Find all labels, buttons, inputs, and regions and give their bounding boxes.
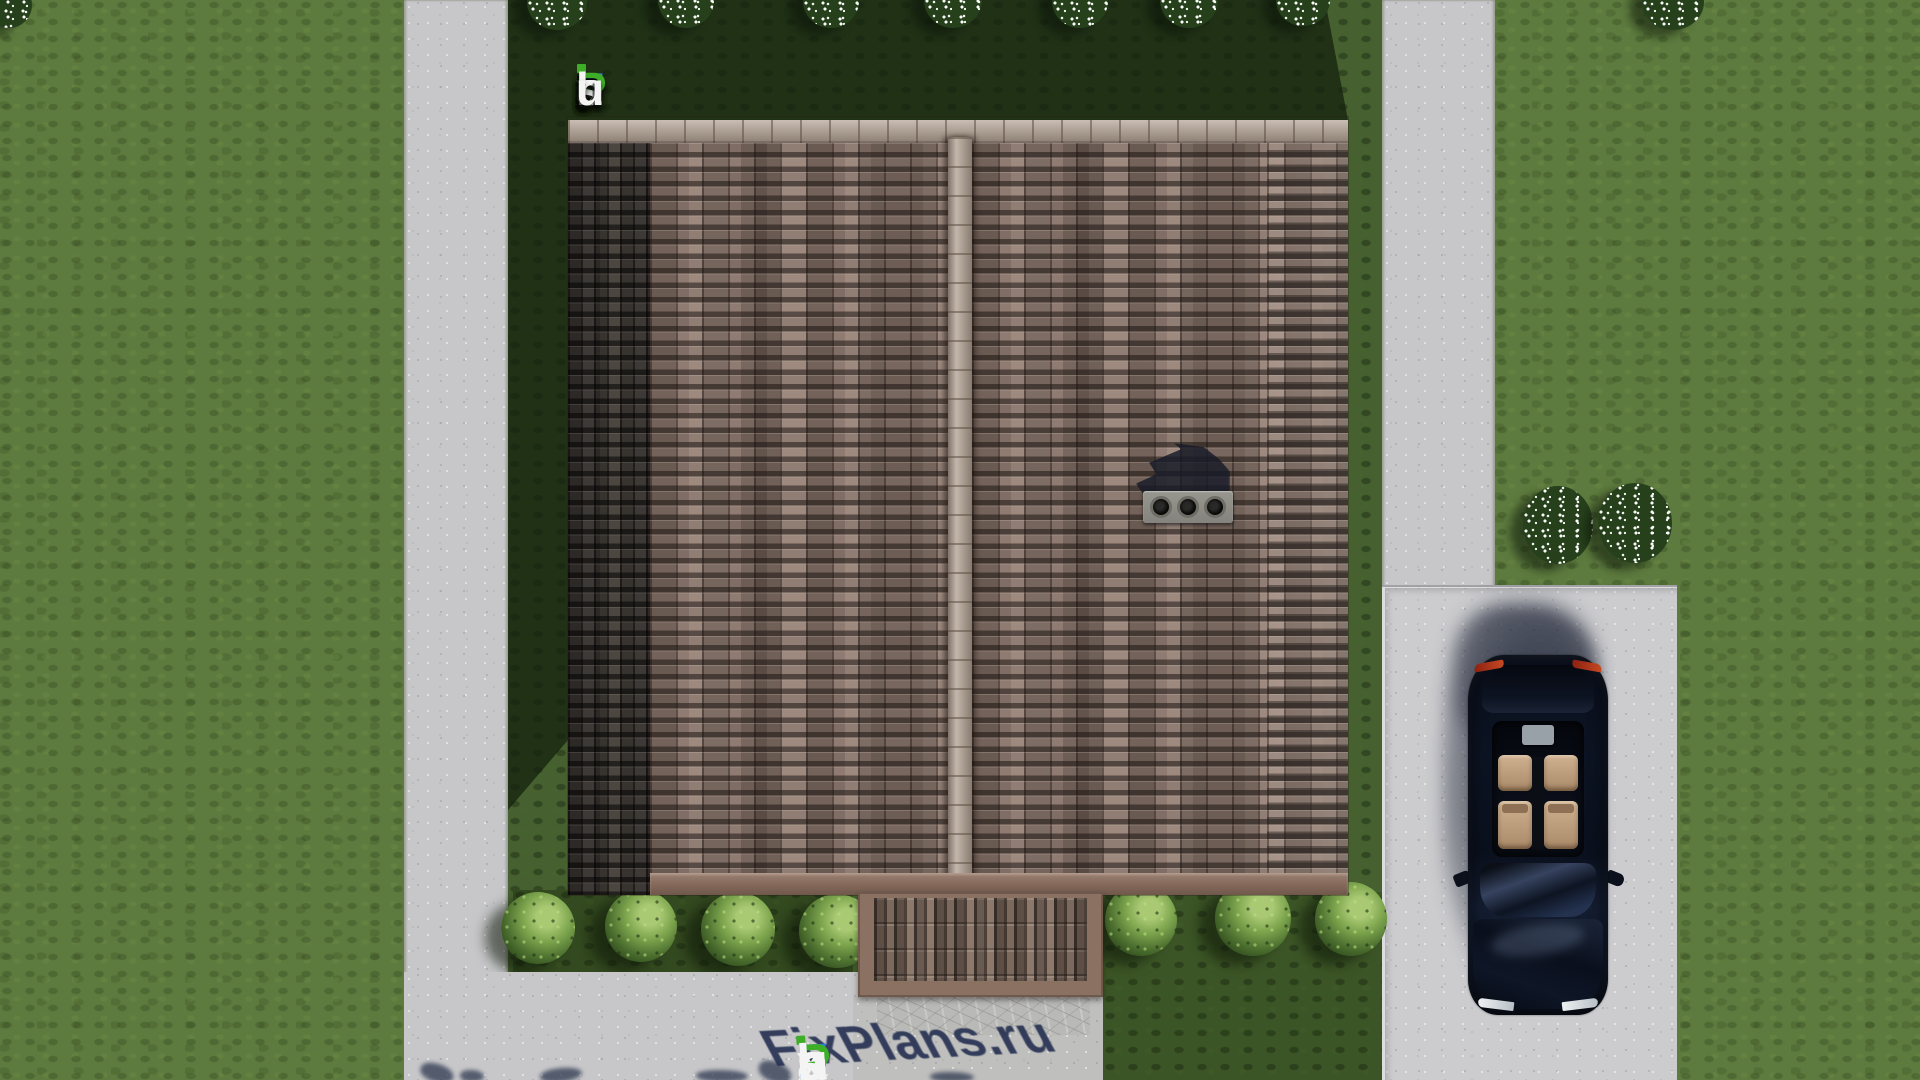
car-group — [1440, 600, 1650, 1030]
porch-roof — [858, 892, 1103, 997]
hood-reflection — [1489, 919, 1586, 961]
car-windshield — [1480, 863, 1596, 917]
tree-shadow — [696, 1070, 748, 1080]
car-glass-roof — [1492, 721, 1584, 857]
porch-roof-tiles — [874, 898, 1087, 981]
driveway-seam — [1382, 585, 1677, 587]
garden-path-left — [404, 0, 508, 1080]
bush — [501, 892, 575, 964]
car-center-tunnel — [1532, 757, 1544, 849]
aerial-render: FixPlans.ru FixPlans.ru FixPlans.ru — [0, 0, 1920, 1080]
house-roof — [568, 117, 1348, 895]
car-hood — [1473, 919, 1603, 1009]
car-rear-window — [1482, 665, 1594, 713]
planting-strip-left — [513, 890, 853, 972]
tree-shadow — [460, 1070, 484, 1080]
car-front-seat — [1498, 801, 1532, 849]
ridge-cap-center — [948, 137, 972, 895]
roof-dark-band — [568, 143, 650, 895]
car-console — [1522, 725, 1554, 745]
roof-slope-left — [650, 143, 948, 873]
car-front-seat — [1544, 801, 1578, 849]
chimney — [1143, 491, 1233, 523]
chimney-flue — [1150, 496, 1172, 518]
car-headrest — [1502, 804, 1528, 813]
car-rear-seat — [1544, 755, 1578, 791]
bush — [605, 890, 677, 962]
bush — [701, 892, 775, 966]
car — [1468, 655, 1608, 1015]
flowering-bush — [1598, 483, 1672, 563]
car-headrest — [1548, 804, 1574, 813]
chimney-flue — [1177, 496, 1199, 518]
lawn-left — [0, 0, 404, 1080]
garden-path-right — [1382, 0, 1495, 590]
bottom-watermark: FixPlans.ru FixPlans.ru — [775, 1016, 1195, 1080]
flowering-bush — [1523, 486, 1593, 564]
chimney-flue — [1204, 496, 1226, 518]
roof-eave-band-right — [1267, 143, 1348, 873]
car-rear-seat — [1498, 755, 1532, 791]
